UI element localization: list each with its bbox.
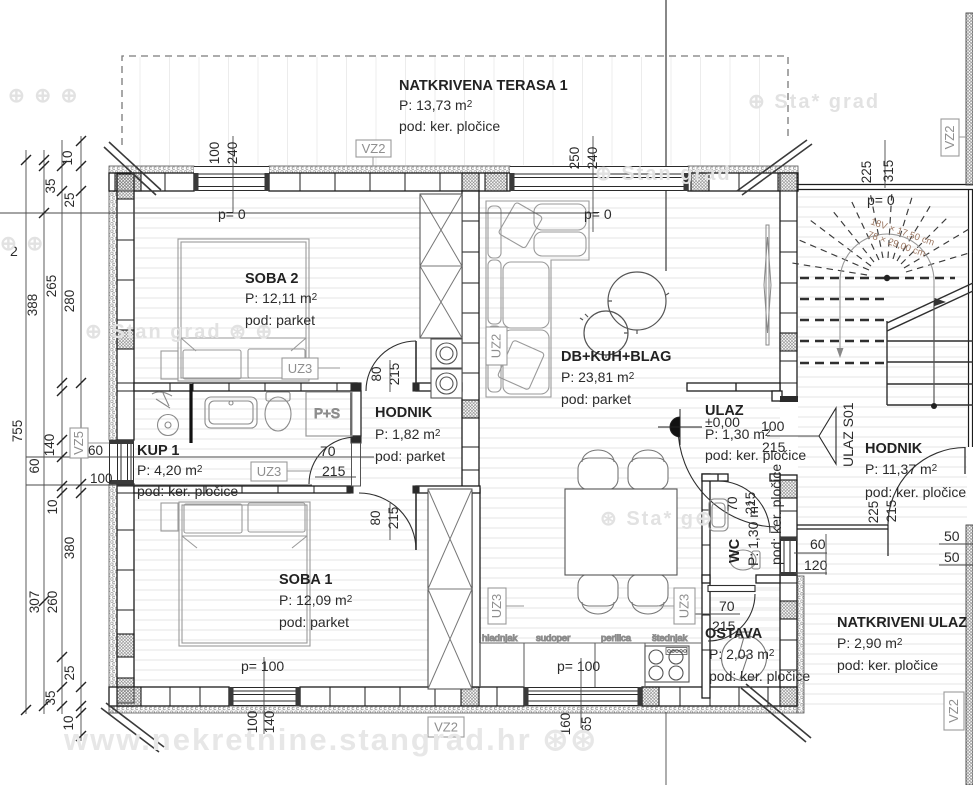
svg-text:215: 215 [387, 363, 402, 386]
svg-text:pod: ker. pločice: pod: ker. pločice [709, 668, 810, 684]
svg-text:www.nekretnine.stangrad.hr ⊛⊛: www.nekretnine.stangrad.hr ⊛⊛ [63, 722, 598, 757]
svg-text:215: 215 [322, 463, 346, 479]
svg-text:250: 250 [567, 147, 582, 170]
svg-text:140: 140 [42, 434, 57, 457]
svg-text:80: 80 [368, 510, 383, 525]
svg-text:P: 2,90 m2: P: 2,90 m2 [837, 635, 903, 651]
svg-text:⊕ Sta* grad: ⊕ Sta* grad [748, 91, 880, 113]
svg-text:280: 280 [62, 290, 77, 313]
svg-text:UZ3: UZ3 [288, 361, 313, 376]
svg-text:P: 1,82 m2: P: 1,82 m2 [375, 426, 441, 442]
svg-text:UZ3: UZ3 [489, 594, 504, 619]
svg-text:sudoper: sudoper [536, 633, 570, 644]
svg-text:P: 12,09 m2: P: 12,09 m2 [279, 592, 353, 608]
svg-text:⊕ ⊕ ⊕: ⊕ ⊕ ⊕ [8, 85, 79, 107]
svg-text:p= 0: p= 0 [218, 206, 246, 222]
svg-text:VZ2: VZ2 [942, 126, 957, 150]
svg-text:25: 25 [62, 665, 77, 680]
svg-text:100: 100 [207, 142, 222, 165]
svg-text:70: 70 [725, 496, 740, 511]
svg-text:100: 100 [90, 471, 113, 486]
svg-text:120: 120 [804, 557, 828, 573]
svg-text:SOBA 1: SOBA 1 [279, 572, 332, 588]
svg-text:35: 35 [43, 690, 58, 705]
svg-text:pod: parket: pod: parket [561, 391, 631, 407]
svg-text:HODNIK: HODNIK [865, 441, 923, 457]
svg-text:P: 1,30 m2: P: 1,30 m2 [745, 500, 761, 566]
svg-text:pod: ker. pločice: pod: ker. pločice [865, 484, 966, 500]
svg-text:260: 260 [45, 591, 60, 614]
svg-text:307: 307 [27, 591, 42, 614]
svg-text:VZ2: VZ2 [946, 699, 961, 723]
svg-text:35: 35 [43, 178, 58, 193]
svg-text:WC: WC [727, 538, 743, 563]
svg-text:70: 70 [719, 598, 735, 614]
svg-text:315: 315 [881, 160, 896, 183]
svg-text:380: 380 [62, 537, 77, 560]
svg-text:25: 25 [62, 192, 77, 207]
svg-text:pod: ker. pločice: pod: ker. pločice [768, 464, 784, 565]
svg-text:pod: ker. pločice: pod: ker. pločice [399, 118, 500, 134]
svg-text:pod: ker. pločice: pod: ker. pločice [705, 447, 806, 463]
svg-text:DB+KUH+BLAG: DB+KUH+BLAG [561, 349, 671, 365]
svg-text:P: 23,81 m2: P: 23,81 m2 [561, 369, 635, 385]
svg-text:215: 215 [386, 507, 401, 530]
svg-text:⊛ Sta* g⊕: ⊛ Sta* g⊕ [600, 508, 714, 530]
svg-text:HODNIK: HODNIK [375, 405, 433, 421]
svg-text:⊕ Stan grad ⊛ ⊕: ⊕ Stan grad ⊛ ⊕ [85, 321, 274, 343]
svg-text:60: 60 [27, 458, 42, 473]
svg-text:70: 70 [320, 443, 336, 459]
svg-text:215: 215 [884, 500, 899, 523]
svg-text:pod: ker. pločice: pod: ker. pločice [137, 483, 238, 499]
svg-text:SOBA 2: SOBA 2 [245, 271, 298, 287]
svg-text:⊕ ⊕: ⊕ ⊕ [0, 233, 45, 255]
svg-text:p= 0: p= 0 [584, 206, 612, 222]
svg-text:NATKRIVENI ULAZ: NATKRIVENI ULAZ [837, 615, 967, 631]
svg-text:pod: ker. pločice: pod: ker. pločice [837, 657, 938, 673]
svg-text:perilica: perilica [601, 633, 632, 644]
svg-text:P+S: P+S [314, 406, 340, 421]
svg-text:225: 225 [866, 501, 881, 524]
svg-text:60: 60 [810, 536, 826, 552]
svg-text:10: 10 [60, 150, 75, 165]
svg-text:OSTAVA: OSTAVA [705, 626, 763, 642]
svg-text:P: 4,20 m2: P: 4,20 m2 [137, 462, 203, 478]
svg-text:P: 12,11 m2: P: 12,11 m2 [245, 290, 318, 306]
svg-text:pod: parket: pod: parket [279, 614, 349, 630]
svg-text:p= 100: p= 100 [557, 658, 600, 674]
svg-text:pod: parket: pod: parket [375, 448, 445, 464]
svg-text:hladnjak: hladnjak [482, 633, 518, 644]
svg-text:VZ5: VZ5 [71, 431, 86, 455]
svg-text:VZ2: VZ2 [362, 141, 386, 156]
svg-text:755: 755 [10, 420, 25, 443]
svg-text:60: 60 [88, 443, 103, 458]
svg-text:10: 10 [45, 499, 60, 514]
svg-text:P: 13,73 m2: P: 13,73 m2 [399, 97, 473, 113]
svg-text:240: 240 [225, 142, 240, 165]
svg-text:NATKRIVENA TERASA 1: NATKRIVENA TERASA 1 [399, 78, 568, 94]
svg-text:ULAZ S01: ULAZ S01 [840, 402, 856, 467]
svg-text:50: 50 [944, 549, 960, 565]
svg-text:388: 388 [25, 294, 40, 317]
svg-text:KUP 1: KUP 1 [137, 443, 179, 459]
svg-text:p= 100: p= 100 [241, 658, 284, 674]
svg-text:265: 265 [44, 275, 59, 298]
svg-text:225: 225 [859, 161, 874, 184]
svg-text:P: 1,30 m2: P: 1,30 m2 [705, 426, 771, 442]
svg-text:UZ3: UZ3 [257, 464, 282, 479]
svg-text:p= 0: p= 0 [867, 192, 895, 208]
svg-text:⊕ Stan grad: ⊕ Stan grad [595, 163, 732, 185]
svg-text:50: 50 [944, 528, 960, 544]
svg-text:P: 11,37 m2: P: 11,37 m2 [865, 461, 938, 477]
svg-text:štednjak: štednjak [652, 633, 688, 644]
svg-text:80: 80 [369, 366, 384, 381]
svg-text:UZ2: UZ2 [489, 334, 504, 359]
svg-text:UZ3: UZ3 [677, 594, 692, 619]
svg-text:P: 2,03 m2: P: 2,03 m2 [709, 646, 775, 662]
